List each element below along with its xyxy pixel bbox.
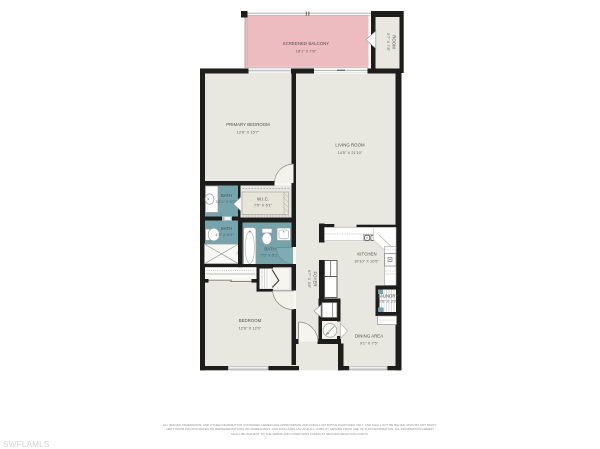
- svg-text:7'5" X 5'1": 7'5" X 5'1": [260, 253, 279, 258]
- svg-text:7'5" X 6'1": 7'5" X 6'1": [254, 203, 273, 208]
- svg-text:ROOM: ROOM: [392, 35, 397, 49]
- svg-text:KITCHEN: KITCHEN: [357, 252, 376, 257]
- svg-text:DINING AREA: DINING AREA: [355, 334, 383, 339]
- svg-text:4'3" X 6'4": 4'3" X 6'4": [215, 232, 234, 237]
- svg-text:PRIMARY BEDROOM: PRIMARY BEDROOM: [226, 122, 270, 127]
- svg-text:W.I.C.: W.I.C.: [257, 197, 269, 202]
- svg-text:BATH: BATH: [221, 226, 232, 231]
- svg-text:6'7" X 3'8": 6'7" X 3'8": [307, 270, 312, 289]
- svg-text:BEDROOM: BEDROOM: [239, 318, 262, 323]
- svg-text:LIVING ROOM: LIVING ROOM: [335, 143, 365, 148]
- svg-text:9'1" X 7'5": 9'1" X 7'5": [360, 341, 379, 346]
- svg-text:BATH: BATH: [264, 247, 275, 252]
- svg-text:FOYER: FOYER: [313, 271, 318, 286]
- svg-text:10'10" X 10'5": 10'10" X 10'5": [354, 259, 379, 264]
- svg-text:3'7" X 7'8": 3'7" X 7'8": [386, 33, 391, 52]
- svg-text:SCREENED BALCONY: SCREENED BALCONY: [283, 41, 329, 46]
- svg-text:10'1" X 6'2": 10'1" X 6'2": [216, 199, 237, 204]
- svg-text:12'6" X 12'0": 12'6" X 12'0": [239, 326, 262, 331]
- svg-text:18'1" X 7'8": 18'1" X 7'8": [296, 49, 317, 54]
- svg-text:14'5" X 21'10": 14'5" X 21'10": [338, 150, 363, 155]
- svg-text:2'6" X 3'3": 2'6" X 3'3": [379, 299, 398, 304]
- svg-text:12'6" X 15'7": 12'6" X 15'7": [237, 130, 260, 135]
- svg-text:BATH: BATH: [221, 193, 232, 198]
